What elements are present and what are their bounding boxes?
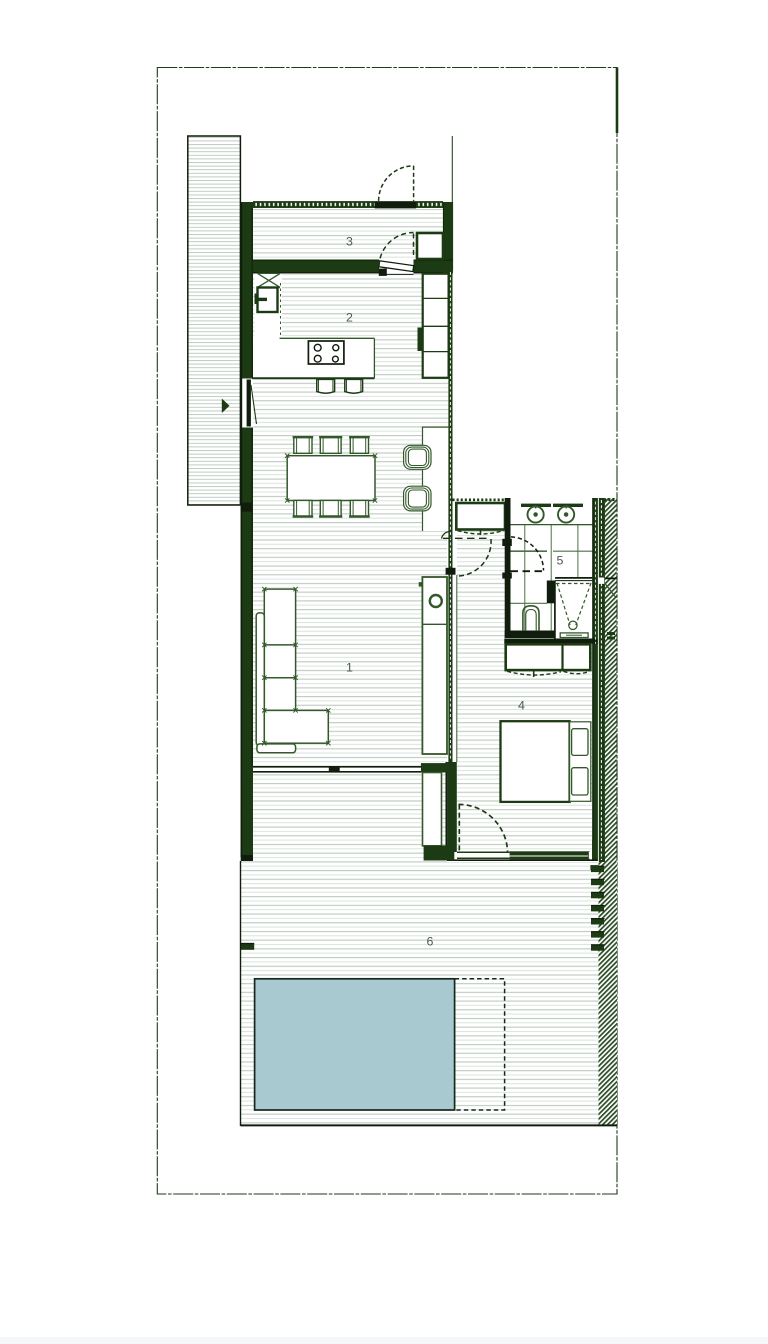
svg-text:5: 5 <box>557 554 564 568</box>
svg-text:3: 3 <box>346 235 353 249</box>
svg-text:4: 4 <box>518 699 525 713</box>
svg-text:1: 1 <box>346 661 353 675</box>
svg-text:2: 2 <box>346 311 353 325</box>
svg-text:6: 6 <box>427 935 434 949</box>
